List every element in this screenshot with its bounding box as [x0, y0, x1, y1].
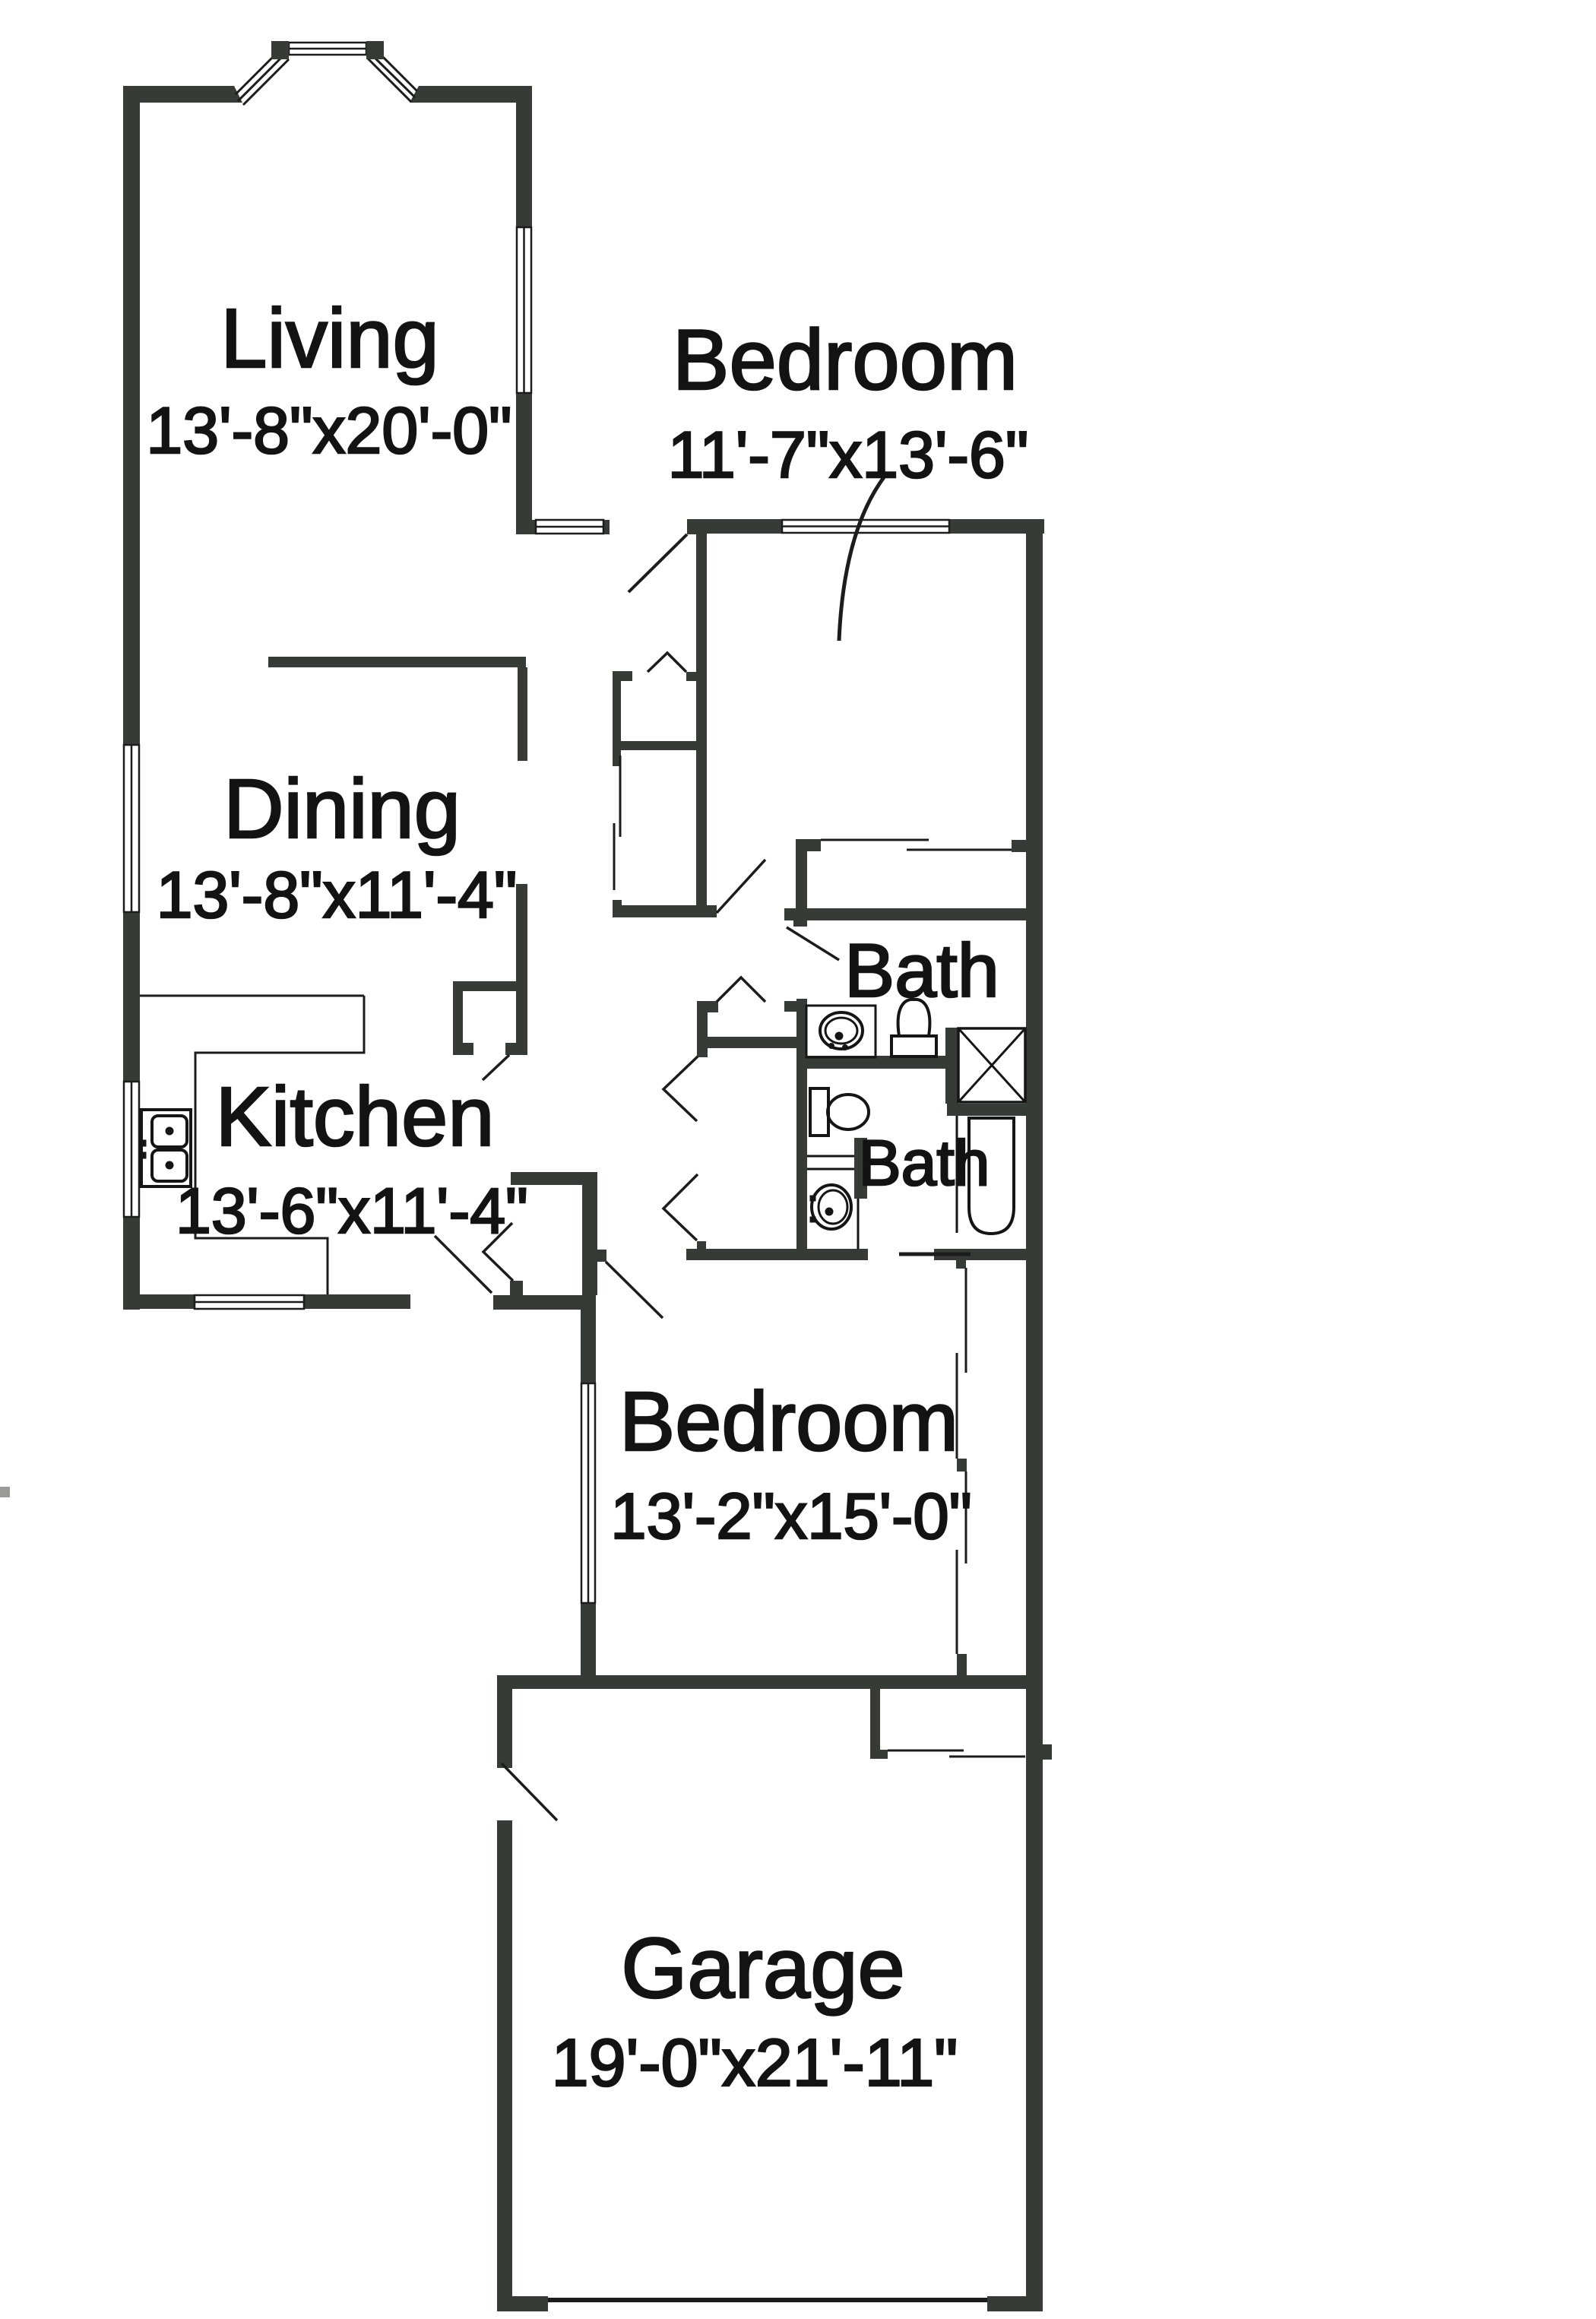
svg-text:Bedroom: Bedroom — [619, 1375, 958, 1468]
svg-text:13'-8"x11'-4": 13'-8"x11'-4" — [157, 859, 518, 932]
svg-text:Garage: Garage — [621, 1921, 905, 2016]
svg-text:13'-8"x20'-0": 13'-8"x20'-0" — [146, 394, 511, 467]
svg-text:13'-2"x15'-0": 13'-2"x15'-0" — [610, 1481, 972, 1553]
svg-text:19'-0"x21'-11": 19'-0"x21'-11" — [552, 2025, 958, 2100]
svg-text:13'-6"x11'-4": 13'-6"x11'-4" — [176, 1175, 528, 1247]
svg-text:Bedroom: Bedroom — [673, 312, 1018, 407]
svg-text:Living: Living — [220, 292, 439, 385]
svg-text:Kitchen: Kitchen — [216, 1070, 495, 1164]
svg-text:11'-7"x13'-6": 11'-7"x13'-6" — [668, 419, 1029, 492]
svg-text:Bath: Bath — [844, 928, 999, 1012]
svg-text:Bath: Bath — [859, 1127, 990, 1199]
svg-text:Dining: Dining — [223, 762, 461, 856]
